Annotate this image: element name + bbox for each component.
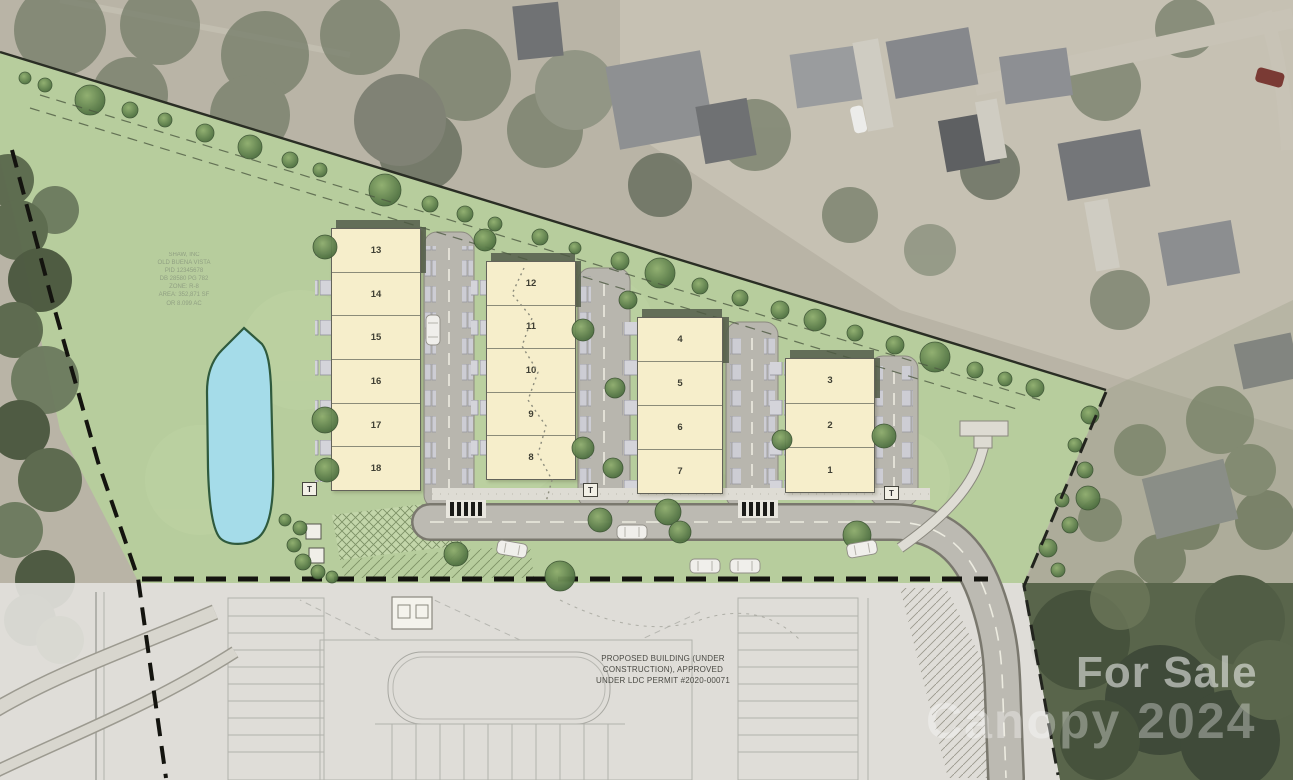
unit-1: 1 (786, 447, 874, 492)
unit-9: 9 (487, 392, 575, 436)
unit-10: 10 (487, 348, 575, 392)
for-sale-watermark: For Sale (1076, 648, 1258, 698)
unit-4-label: 4 (677, 334, 682, 345)
transformer-marker: T (884, 486, 899, 500)
unit-6-label: 6 (677, 422, 682, 433)
unit-3: 3 (786, 359, 874, 403)
mail-kiosk (392, 597, 432, 629)
building-units-1-3: 3 2 1 (785, 358, 875, 493)
building-units-8-12: 12 11 10 9 8 (486, 261, 576, 480)
building-units-13-18: 13 14 15 16 17 18 (331, 228, 421, 491)
unit-6: 6 (638, 405, 722, 449)
parcel-note: SHAW, INC OLD BUENA VISTA PID 12345678 D… (140, 251, 228, 308)
construction-note-line: CONSTRUCTION), APPROVED (558, 664, 768, 675)
unit-8: 8 (487, 435, 575, 479)
unit-16-label: 16 (371, 376, 382, 387)
unit-14: 14 (332, 272, 420, 316)
unit-8-label: 8 (528, 452, 533, 463)
unit-11: 11 (487, 305, 575, 349)
building-units-4-7: 4 5 6 7 (637, 317, 723, 494)
unit-17-label: 17 (371, 420, 382, 431)
transformer-marker: T (302, 482, 317, 496)
construction-note-line: UNDER LDC PERMIT #2020-00071 (558, 675, 768, 686)
unit-11-label: 11 (526, 321, 536, 332)
unit-10-label: 10 (526, 365, 537, 376)
unit-4: 4 (638, 318, 722, 361)
unit-9-label: 9 (528, 409, 533, 420)
unit-12-label: 12 (526, 278, 537, 289)
unit-2: 2 (786, 403, 874, 448)
unit-2-label: 2 (827, 420, 832, 431)
site-plan-rendering: 13 14 15 16 17 18 12 11 10 9 8 4 5 6 7 3… (0, 0, 1293, 780)
unit-13-label: 13 (371, 245, 382, 256)
parcel-note-line: PID 12345678 (140, 267, 228, 275)
unit-7: 7 (638, 449, 722, 493)
construction-note-line: PROPOSED BUILDING (UNDER (558, 653, 768, 664)
unit-14-label: 14 (371, 289, 382, 300)
parcel-note-line: AREA: 352,871 SF (140, 291, 228, 299)
unit-3-label: 3 (827, 375, 832, 386)
unit-15: 15 (332, 315, 420, 359)
unit-1-label: 1 (827, 465, 832, 476)
construction-zone (0, 583, 1060, 780)
unit-5: 5 (638, 361, 722, 405)
stormwater-pond (207, 328, 273, 544)
unit-18: 18 (332, 446, 420, 490)
unit-12: 12 (487, 262, 575, 305)
unit-13: 13 (332, 229, 420, 272)
parcel-note-line: OR 8.099 AC (140, 300, 228, 308)
unit-17: 17 (332, 403, 420, 447)
parcel-note-line: OLD BUENA VISTA (140, 259, 228, 267)
transformer-marker: T (583, 483, 598, 497)
parcel-note-line: DB 28580 PG 782 (140, 275, 228, 283)
unit-15-label: 15 (371, 332, 382, 343)
parcel-note-line: ZONE: R-8 (140, 283, 228, 291)
brand-year-watermark: Canopy 2024 (926, 692, 1256, 750)
unit-5-label: 5 (677, 378, 682, 389)
unit-7-label: 7 (677, 466, 682, 477)
unit-16: 16 (332, 359, 420, 403)
parcel-note-line: SHAW, INC (140, 251, 228, 259)
unit-18-label: 18 (371, 463, 382, 474)
construction-note: PROPOSED BUILDING (UNDER CONSTRUCTION), … (558, 653, 768, 687)
